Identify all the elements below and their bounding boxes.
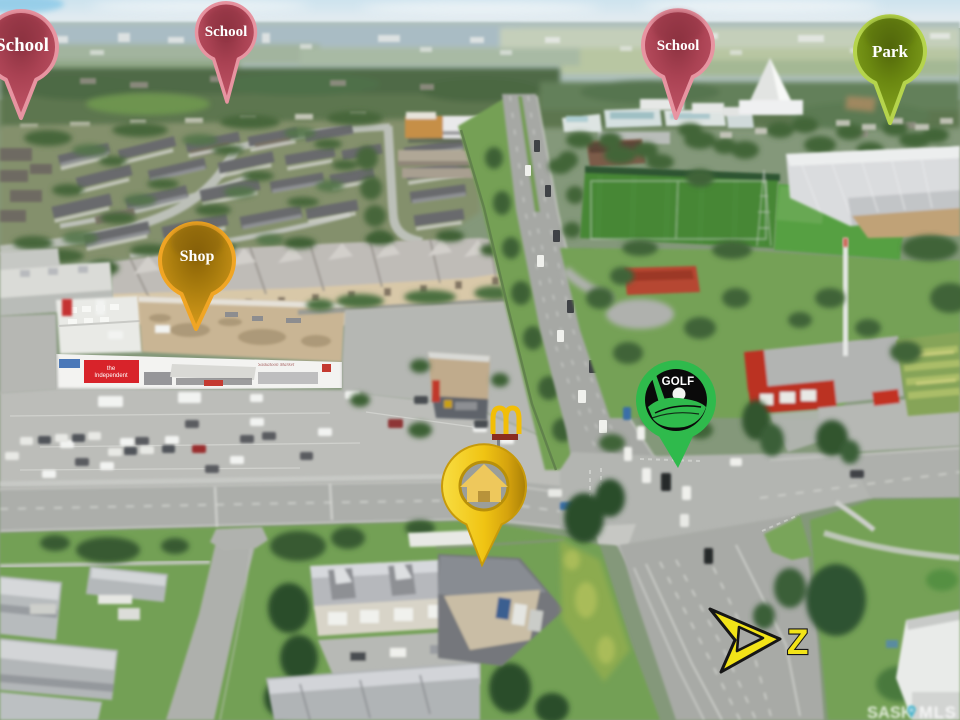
svg-text:School: School xyxy=(0,35,49,56)
svg-text:MLS: MLS xyxy=(919,704,957,720)
svg-text:School: School xyxy=(657,38,700,54)
svg-text:GOLF: GOLF xyxy=(662,376,695,388)
svg-text:School: School xyxy=(205,24,248,40)
svg-text:Shop: Shop xyxy=(180,248,215,265)
svg-text:SASK: SASK xyxy=(867,704,913,720)
svg-text:Saskatoon Market: Saskatoon Market xyxy=(258,363,295,368)
svg-text:Z: Z xyxy=(787,623,808,662)
svg-text:Park: Park xyxy=(872,42,908,61)
